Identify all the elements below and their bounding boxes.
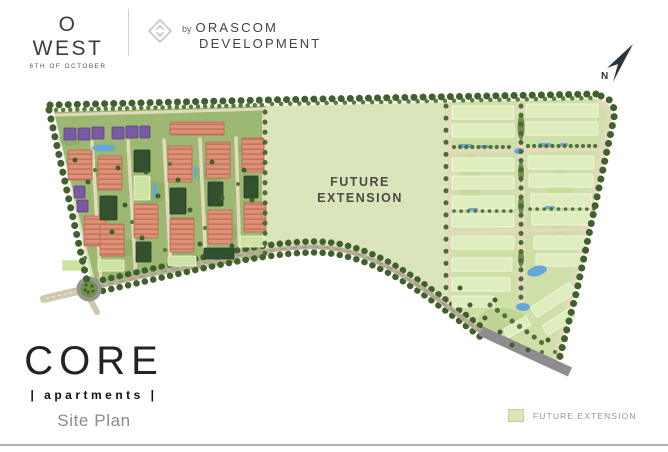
building bbox=[452, 236, 514, 249]
project-title: CORE bbox=[16, 341, 172, 381]
building bbox=[529, 174, 593, 187]
building bbox=[64, 128, 76, 140]
building bbox=[92, 127, 104, 139]
header-divider bbox=[128, 9, 129, 56]
brand-name: O WEST bbox=[22, 13, 114, 61]
building bbox=[534, 236, 586, 249]
building bbox=[170, 122, 224, 135]
developer-name-block: by ORASCOM DEVELOPMENT bbox=[182, 17, 321, 51]
future-extension-label-line1: FUTURE bbox=[330, 175, 390, 189]
pond bbox=[92, 145, 116, 152]
building bbox=[244, 176, 258, 198]
building bbox=[170, 218, 194, 252]
building bbox=[452, 258, 512, 271]
building bbox=[531, 194, 591, 207]
building bbox=[134, 176, 150, 200]
developer-name: ORASCOM bbox=[196, 20, 279, 35]
plan-title: Site Plan bbox=[16, 411, 172, 431]
project-title-block: CORE | apartments | Site Plan bbox=[16, 341, 172, 431]
building bbox=[78, 128, 90, 140]
legend: FUTURE EXTENSION bbox=[508, 409, 637, 422]
building bbox=[134, 150, 150, 172]
building bbox=[206, 142, 230, 178]
building bbox=[136, 242, 151, 262]
building bbox=[452, 106, 514, 119]
building bbox=[98, 260, 124, 271]
north-arrow-icon: N bbox=[597, 42, 641, 88]
building bbox=[140, 126, 150, 138]
brand-logo: O WEST 6TH OF OCTOBER bbox=[22, 13, 114, 70]
building bbox=[452, 158, 514, 171]
building bbox=[452, 196, 514, 209]
building bbox=[536, 254, 582, 266]
building bbox=[134, 204, 158, 238]
building bbox=[98, 156, 122, 190]
building bbox=[528, 156, 594, 169]
developer-by: by bbox=[182, 24, 192, 34]
building bbox=[100, 196, 117, 220]
pond bbox=[194, 166, 197, 178]
roundabout bbox=[44, 277, 102, 313]
building bbox=[526, 104, 598, 117]
north-label: N bbox=[601, 71, 608, 82]
building bbox=[532, 212, 590, 225]
building bbox=[208, 210, 232, 244]
building bbox=[526, 122, 598, 135]
building bbox=[452, 214, 514, 227]
developer-name-line2: DEVELOPMENT bbox=[182, 36, 321, 51]
legend-swatch-future-extension bbox=[508, 409, 524, 422]
orascom-logo-icon bbox=[147, 17, 173, 50]
building bbox=[126, 126, 138, 138]
building bbox=[452, 176, 514, 189]
brand-subtitle: 6TH OF OCTOBER bbox=[22, 63, 114, 70]
pool bbox=[516, 303, 530, 311]
building bbox=[68, 150, 92, 180]
legend-label: FUTURE EXTENSION bbox=[533, 411, 637, 421]
bottom-border bbox=[0, 444, 668, 446]
building bbox=[168, 256, 196, 266]
building bbox=[204, 248, 234, 259]
building bbox=[112, 127, 124, 139]
building bbox=[244, 202, 266, 232]
building bbox=[242, 138, 264, 172]
building bbox=[208, 182, 223, 206]
page: FUTURE EXTENSION O WEST 6TH OF OCTOBER b… bbox=[0, 0, 668, 452]
building bbox=[100, 224, 124, 256]
building bbox=[74, 186, 85, 198]
future-extension-label-line2: EXTENSION bbox=[317, 191, 403, 205]
building bbox=[170, 188, 186, 214]
developer-logo: by ORASCOM DEVELOPMENT bbox=[147, 17, 321, 51]
building bbox=[240, 236, 264, 247]
building bbox=[77, 200, 88, 212]
project-subtitle: | apartments | bbox=[16, 388, 172, 402]
building bbox=[452, 124, 514, 137]
